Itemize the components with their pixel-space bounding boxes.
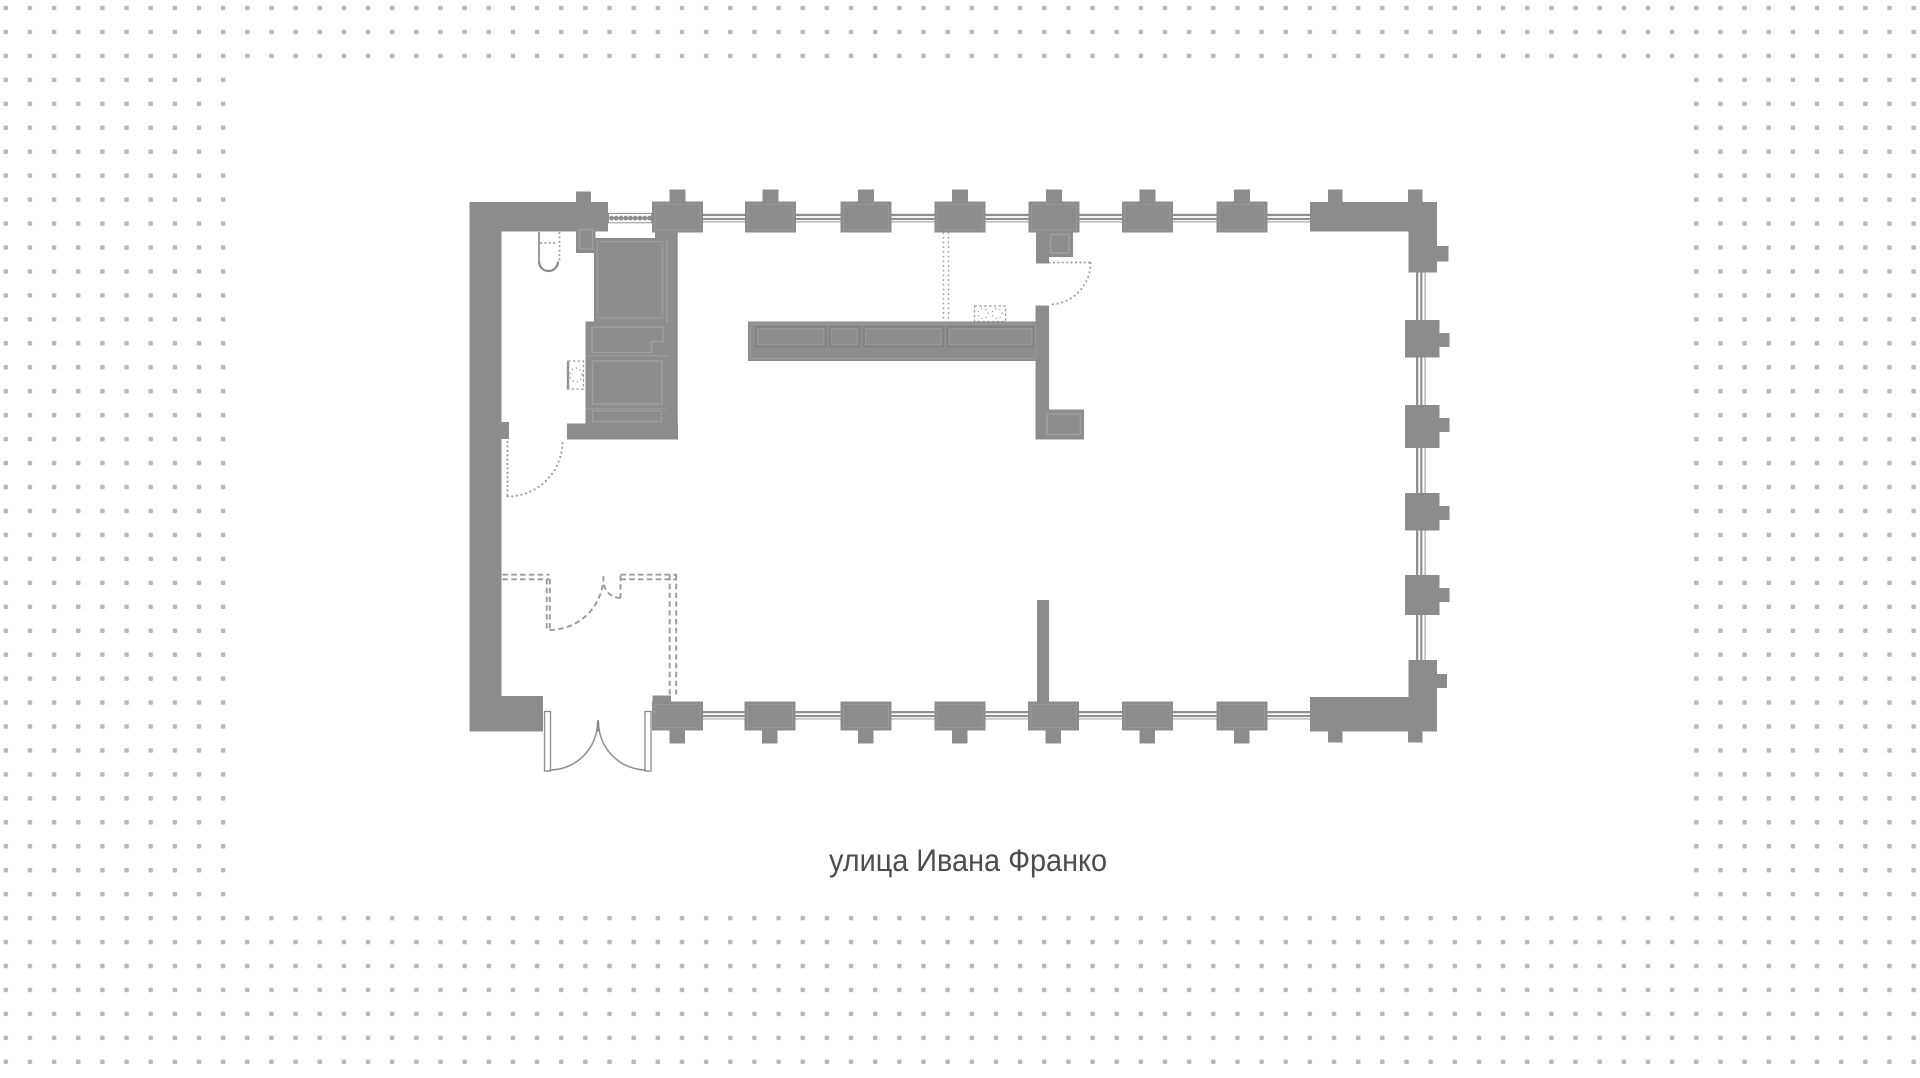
- svg-text:улица Ивана Франко: улица Ивана Франко: [829, 842, 1107, 878]
